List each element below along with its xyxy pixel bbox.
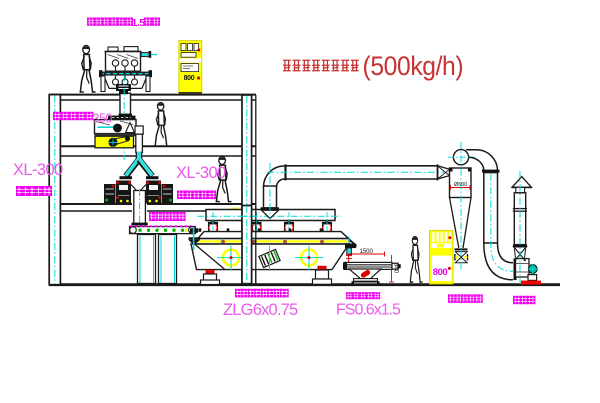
svg-text:1500: 1500 [360,249,374,255]
svg-text:340: 340 [393,263,399,274]
svg-text:800: 800 [184,75,195,82]
svg-text:ZLG6x0.75: ZLG6x0.75 [223,301,298,319]
svg-text:(500kg/h): (500kg/h) [363,52,464,81]
svg-text:800: 800 [433,267,448,278]
svg-text:XL-300: XL-300 [176,164,226,182]
svg-text:FS0.6x1.5: FS0.6x1.5 [336,302,401,319]
svg-text:XL-300: XL-300 [13,161,63,179]
svg-text:1.5: 1.5 [132,17,146,29]
svg-text:350: 350 [93,111,113,125]
